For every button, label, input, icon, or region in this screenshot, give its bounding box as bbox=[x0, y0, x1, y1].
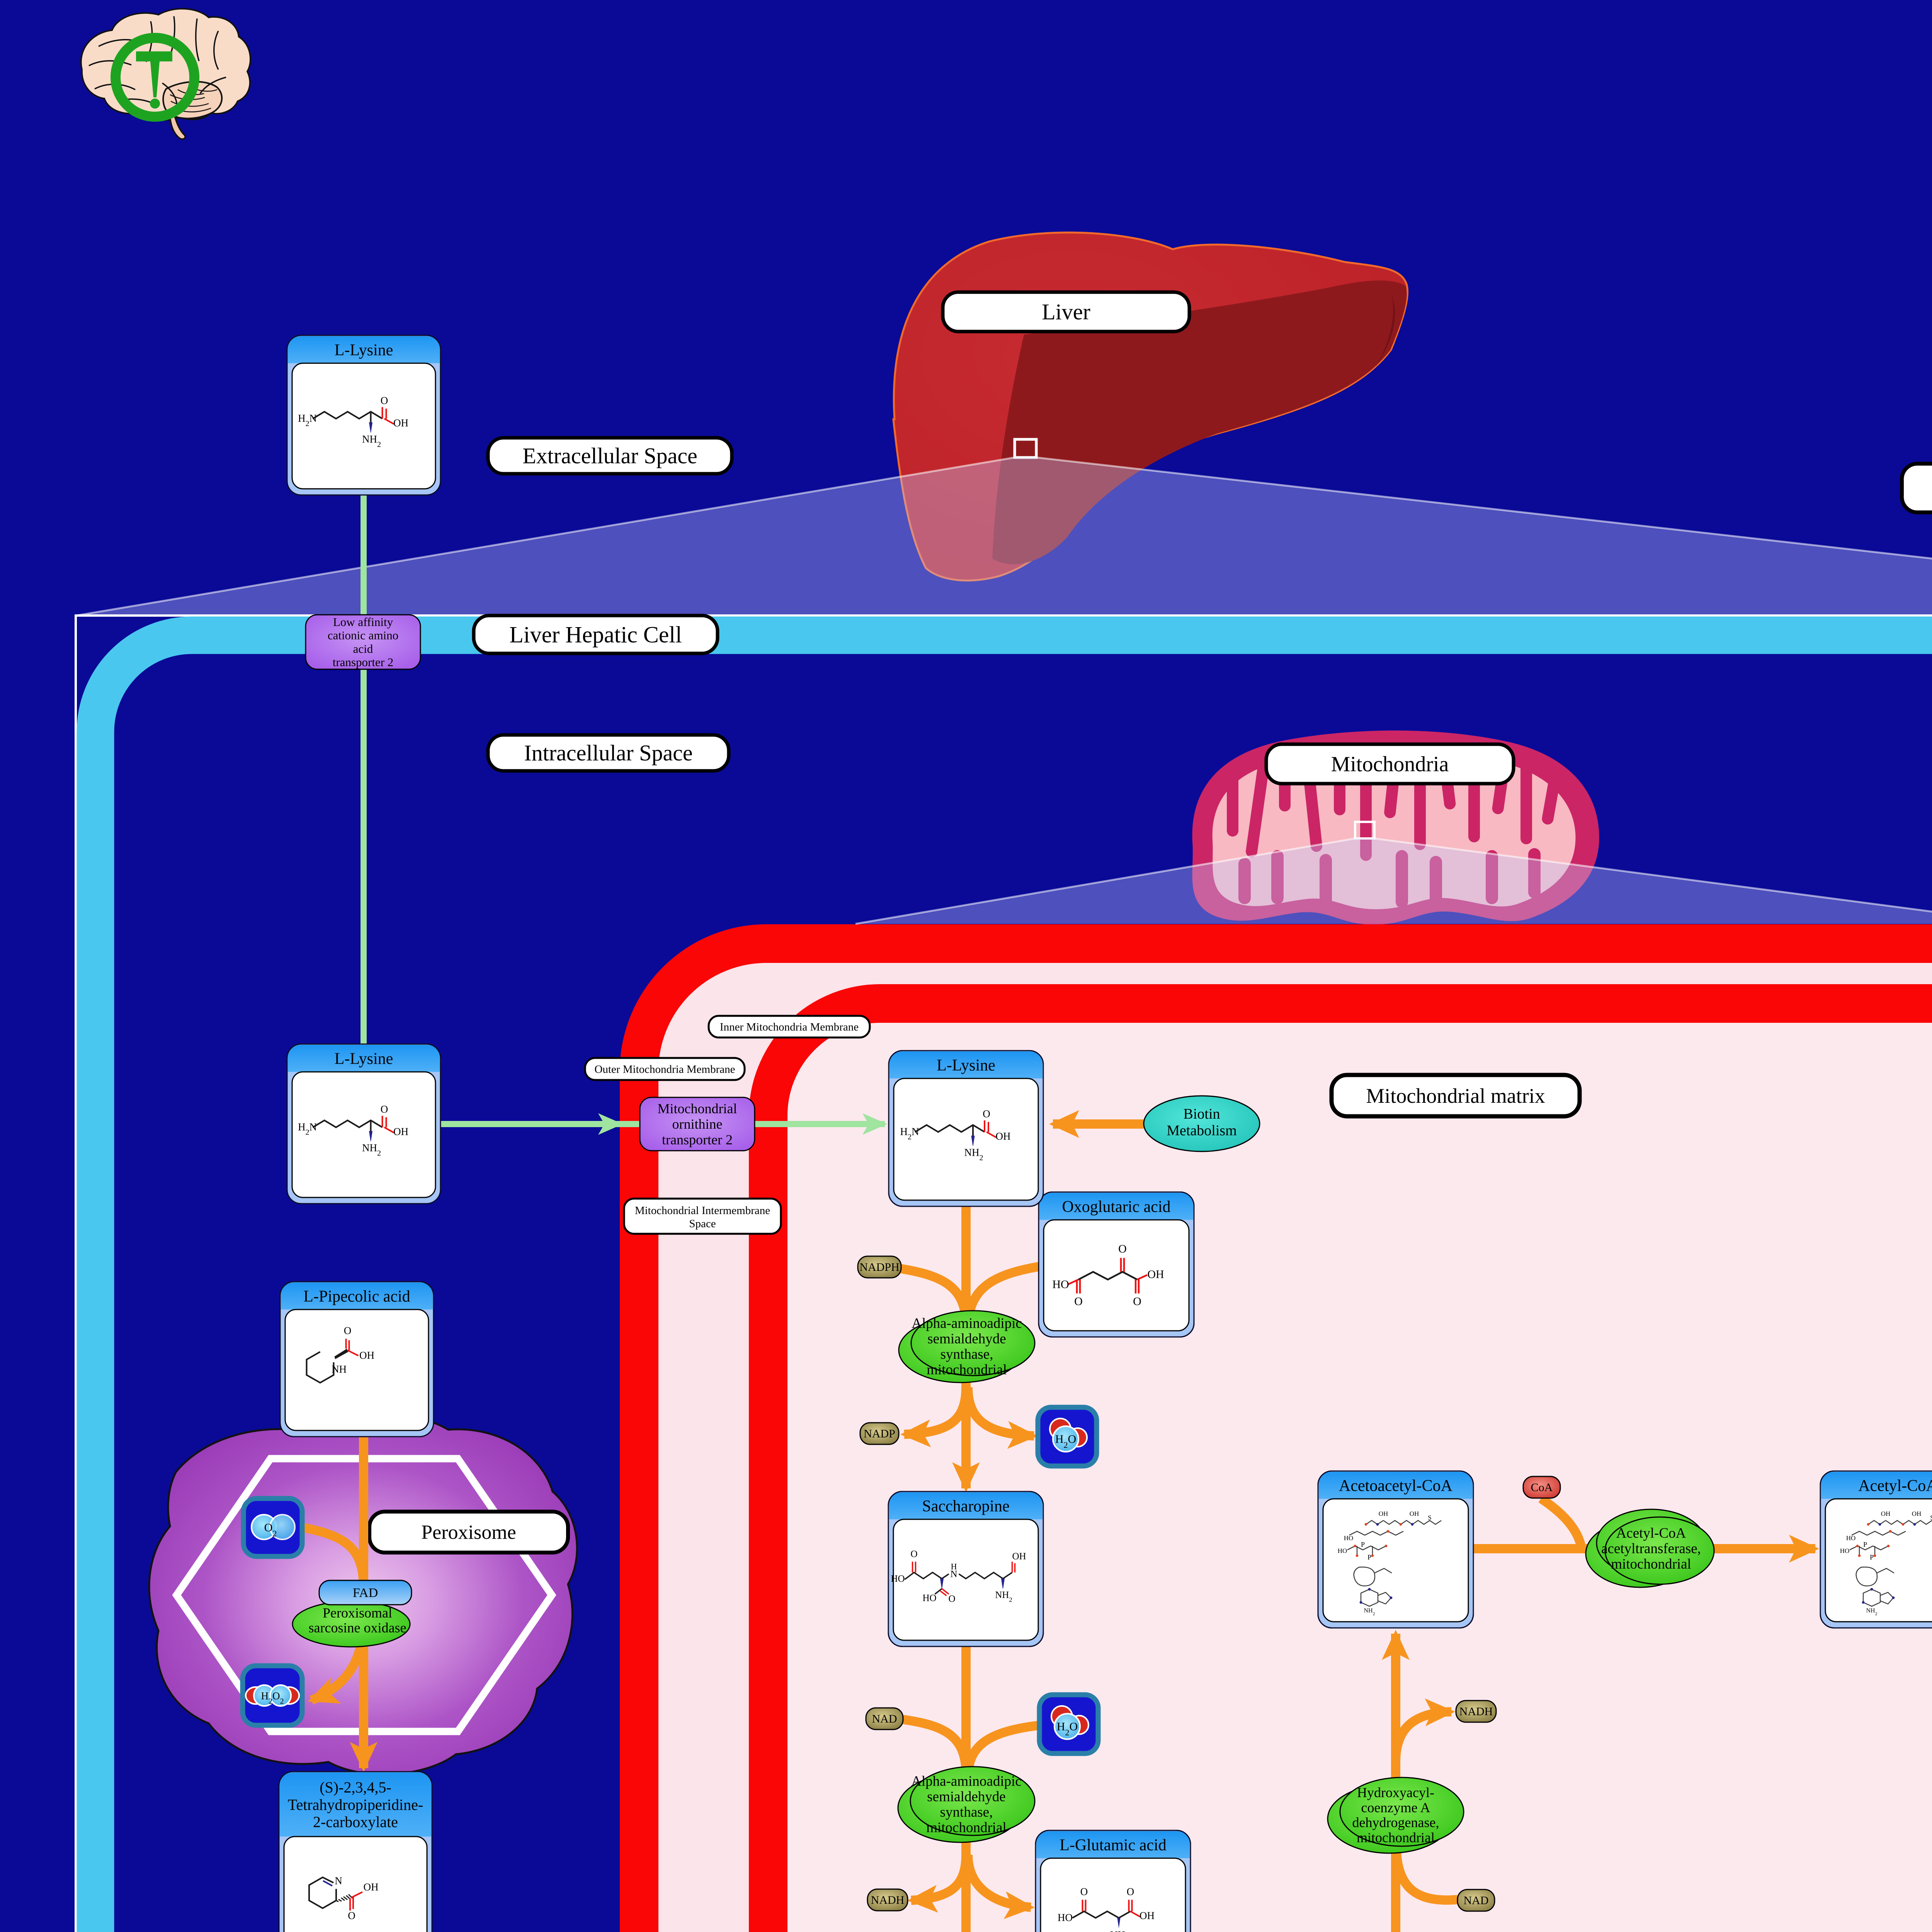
svg-text:O: O bbox=[948, 1594, 955, 1604]
svg-text:O: O bbox=[348, 1910, 355, 1922]
svg-text:L-Lysine: L-Lysine bbox=[335, 1050, 393, 1068]
svg-text:OH: OH bbox=[364, 1881, 379, 1893]
svg-text:O: O bbox=[910, 1549, 917, 1560]
svg-text:NAD: NAD bbox=[1464, 1894, 1489, 1907]
svg-text:NADH: NADH bbox=[871, 1894, 905, 1906]
svg-text:mitochondrial: mitochondrial bbox=[926, 1820, 1007, 1836]
svg-text:OH: OH bbox=[393, 1126, 408, 1138]
svg-text:O: O bbox=[1080, 1886, 1088, 1898]
svg-text:acid: acid bbox=[353, 642, 373, 655]
svg-text:OH: OH bbox=[1410, 1510, 1419, 1517]
svg-text:mitochondrial: mitochondrial bbox=[1357, 1830, 1435, 1845]
svg-text:Mitochondrial: Mitochondrial bbox=[658, 1101, 737, 1116]
svg-text:S: S bbox=[1428, 1514, 1431, 1521]
svg-text:OH: OH bbox=[996, 1131, 1011, 1142]
svg-text:N: N bbox=[335, 1875, 342, 1887]
svg-text:OH: OH bbox=[393, 417, 408, 429]
svg-text:L-Glutamic acid: L-Glutamic acid bbox=[1060, 1836, 1166, 1854]
svg-text:HO: HO bbox=[922, 1593, 936, 1604]
svg-text:Mitochondrial Intermembrane: Mitochondrial Intermembrane bbox=[635, 1204, 770, 1217]
svg-text:mitochondrial: mitochondrial bbox=[927, 1362, 1007, 1378]
svg-text:NADH: NADH bbox=[1459, 1705, 1493, 1718]
svg-text:Biotin: Biotin bbox=[1183, 1106, 1220, 1122]
svg-text:NADPH: NADPH bbox=[859, 1261, 899, 1274]
svg-text:L-Lysine: L-Lysine bbox=[335, 341, 393, 359]
svg-text:L-Lysine: L-Lysine bbox=[937, 1056, 995, 1074]
svg-text:OH: OH bbox=[1881, 1510, 1891, 1517]
svg-text:Acetoacetyl-CoA: Acetoacetyl-CoA bbox=[1339, 1477, 1453, 1495]
svg-text:Acetyl-CoA: Acetyl-CoA bbox=[1616, 1526, 1686, 1541]
svg-text:Alpha-aminoadipic: Alpha-aminoadipic bbox=[912, 1316, 1022, 1332]
svg-text:S: S bbox=[1930, 1514, 1932, 1521]
svg-text:semialdehyde: semialdehyde bbox=[927, 1789, 1005, 1805]
svg-text:HO: HO bbox=[1338, 1547, 1347, 1554]
svg-text:semialdehyde: semialdehyde bbox=[927, 1331, 1006, 1347]
svg-text:Liver Hepatic Cell: Liver Hepatic Cell bbox=[509, 622, 682, 647]
svg-text:Mitochondrial matrix: Mitochondrial matrix bbox=[1366, 1084, 1545, 1107]
svg-text:HO: HO bbox=[1052, 1278, 1069, 1291]
svg-text:acetyltransferase,: acetyltransferase, bbox=[1601, 1541, 1701, 1557]
svg-text:Acetyl-CoA: Acetyl-CoA bbox=[1858, 1477, 1932, 1495]
svg-text:mitochondrial: mitochondrial bbox=[1611, 1556, 1691, 1572]
svg-text:Inner Mitochondria Membrane: Inner Mitochondria Membrane bbox=[720, 1021, 859, 1033]
svg-text:Metabolism: Metabolism bbox=[1167, 1122, 1237, 1139]
svg-text:Mitochondria: Mitochondria bbox=[1331, 752, 1449, 776]
svg-text:(S)-2,3,4,5-: (S)-2,3,4,5- bbox=[320, 1779, 391, 1796]
svg-text:ornithine: ornithine bbox=[672, 1116, 723, 1132]
svg-text:dehydrogenase,: dehydrogenase, bbox=[1352, 1815, 1439, 1830]
svg-text:O: O bbox=[1127, 1886, 1134, 1898]
svg-text:O: O bbox=[983, 1108, 990, 1120]
svg-text:P: P bbox=[1367, 1553, 1371, 1561]
svg-text:O: O bbox=[381, 395, 388, 406]
svg-text:Extracellular Space: Extracellular Space bbox=[522, 443, 697, 468]
svg-text:cationic amino: cationic amino bbox=[328, 629, 398, 642]
svg-text:2-carboxylate: 2-carboxylate bbox=[313, 1813, 398, 1831]
svg-text:Oxoglutaric acid: Oxoglutaric acid bbox=[1062, 1198, 1170, 1216]
svg-text:transporter 2: transporter 2 bbox=[662, 1132, 733, 1148]
svg-text:O: O bbox=[1118, 1243, 1127, 1255]
svg-text:OH: OH bbox=[1139, 1910, 1155, 1922]
svg-text:Peroxisomal: Peroxisomal bbox=[323, 1605, 392, 1621]
svg-text:O: O bbox=[1133, 1295, 1141, 1308]
svg-text:HO: HO bbox=[1840, 1547, 1850, 1554]
svg-text:OH: OH bbox=[1012, 1551, 1026, 1562]
svg-text:Tetrahydropiperidine-: Tetrahydropiperidine- bbox=[288, 1796, 423, 1813]
svg-text:O: O bbox=[381, 1104, 388, 1115]
svg-text:Peroxisome: Peroxisome bbox=[421, 1522, 516, 1544]
svg-text:Intracellular Space: Intracellular Space bbox=[524, 740, 692, 765]
svg-text:Hydroxyacyl-: Hydroxyacyl- bbox=[1357, 1785, 1434, 1800]
svg-text:O: O bbox=[1074, 1295, 1083, 1308]
svg-text:sarcosine oxidase: sarcosine oxidase bbox=[309, 1620, 406, 1636]
svg-text:OH: OH bbox=[1379, 1510, 1388, 1517]
svg-text:Space: Space bbox=[689, 1218, 716, 1230]
svg-text:HO: HO bbox=[891, 1574, 905, 1584]
svg-text:P: P bbox=[1870, 1553, 1874, 1561]
svg-text:OH: OH bbox=[359, 1350, 374, 1361]
svg-text:OH: OH bbox=[1147, 1268, 1164, 1281]
svg-text:transporter 2: transporter 2 bbox=[333, 655, 394, 669]
svg-text:FAD: FAD bbox=[353, 1586, 378, 1600]
svg-text:N: N bbox=[950, 1569, 957, 1580]
svg-text:NAD: NAD bbox=[872, 1713, 897, 1725]
svg-text:NADP: NADP bbox=[864, 1427, 895, 1440]
svg-text:HO: HO bbox=[1344, 1534, 1354, 1542]
svg-text:OH: OH bbox=[1912, 1510, 1922, 1517]
svg-text:coenzyme A: coenzyme A bbox=[1361, 1800, 1430, 1815]
svg-text:P: P bbox=[1863, 1541, 1867, 1548]
svg-text:L-Pipecolic acid: L-Pipecolic acid bbox=[303, 1287, 410, 1305]
svg-text:HO: HO bbox=[1846, 1534, 1856, 1542]
svg-text:HO: HO bbox=[1058, 1912, 1073, 1923]
svg-text:Low affinity: Low affinity bbox=[333, 615, 393, 629]
svg-text:O: O bbox=[344, 1325, 352, 1337]
svg-text:CoA: CoA bbox=[1531, 1481, 1553, 1494]
svg-text:synthase,: synthase, bbox=[940, 1804, 993, 1820]
svg-text:Outer Mitochondria Membrane: Outer Mitochondria Membrane bbox=[594, 1063, 735, 1075]
svg-text:synthase,: synthase, bbox=[940, 1347, 993, 1362]
svg-text:Alpha-aminoadipic: Alpha-aminoadipic bbox=[911, 1774, 1022, 1789]
svg-text:Saccharopine: Saccharopine bbox=[922, 1497, 1009, 1515]
svg-text:NH: NH bbox=[332, 1364, 347, 1375]
svg-text:P: P bbox=[1361, 1541, 1365, 1548]
svg-text:Liver: Liver bbox=[1042, 299, 1090, 325]
